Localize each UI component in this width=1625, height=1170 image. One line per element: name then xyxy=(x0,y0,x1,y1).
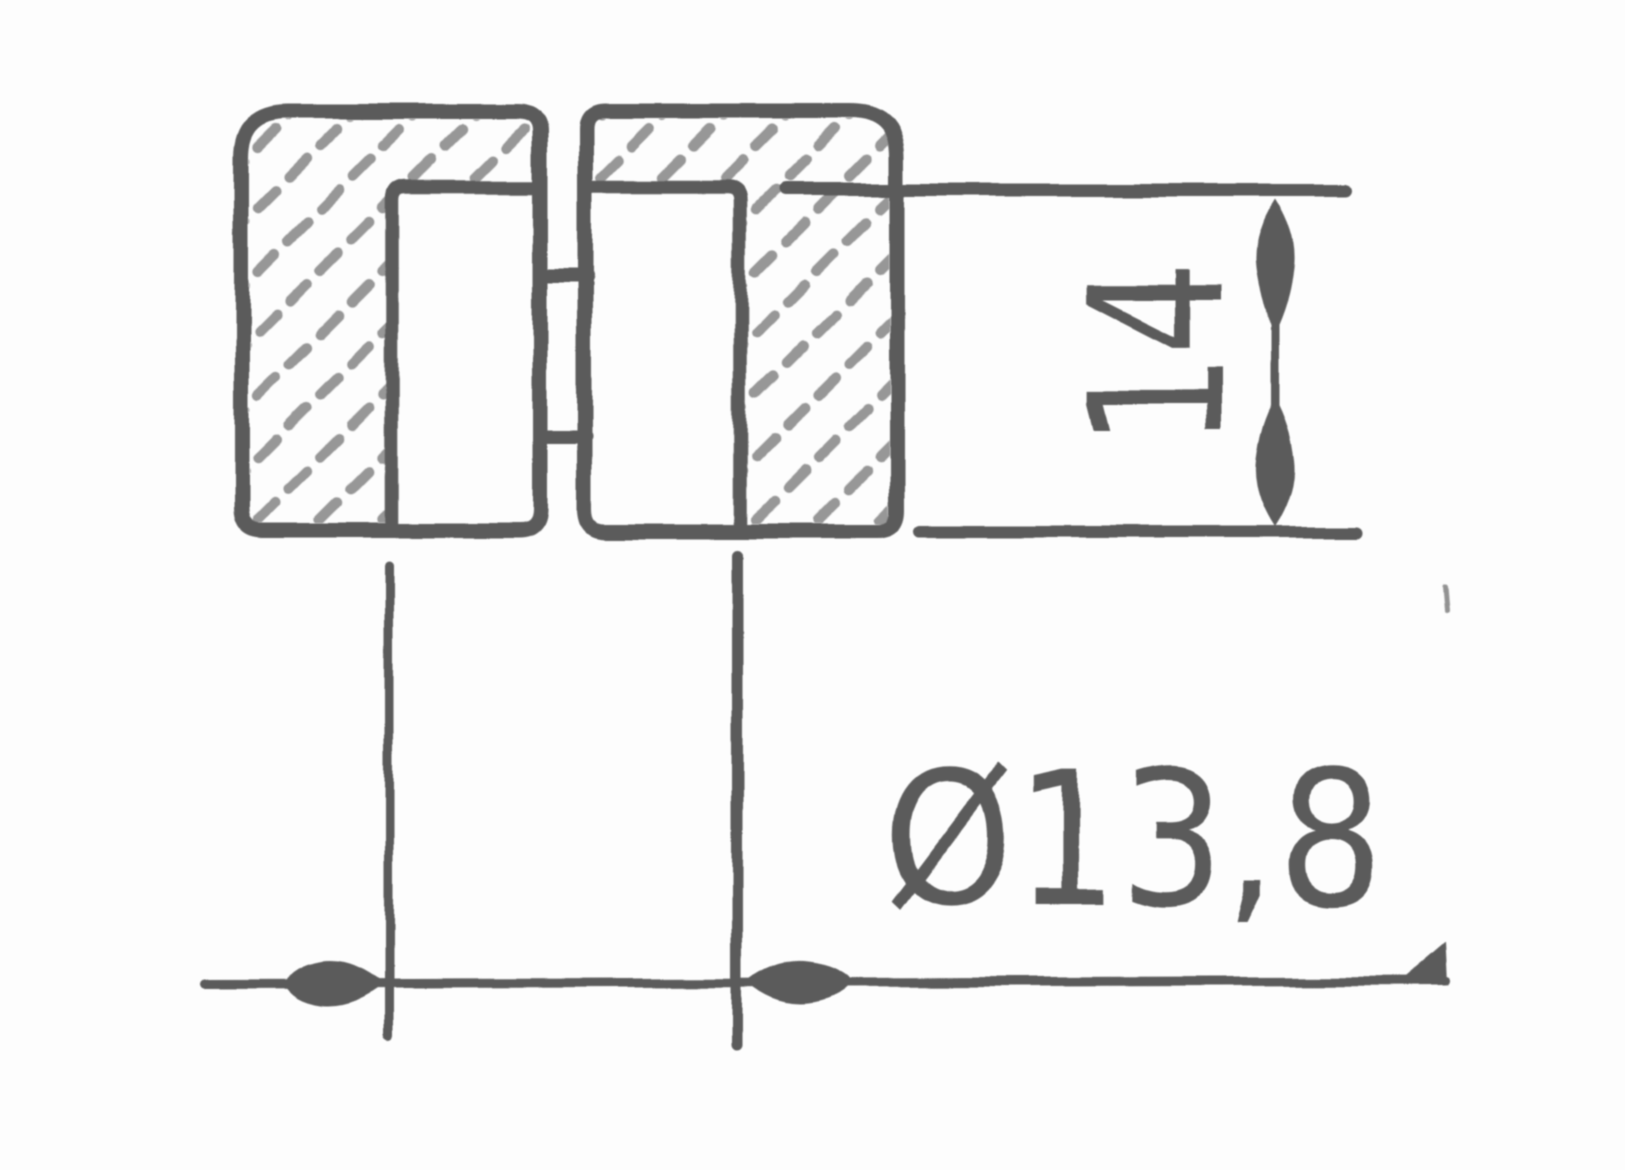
diameter-arrow-left xyxy=(285,960,384,1005)
right-half-section xyxy=(585,111,897,531)
stray-pencil-tick xyxy=(1444,588,1446,611)
diameter-arrow-right xyxy=(747,960,853,1003)
height-dim-label: 14 xyxy=(1050,262,1266,447)
diameter-dim-label: Ø13,8 xyxy=(884,731,1384,947)
drawing-canvas: 14 Ø13,8 xyxy=(0,0,1625,1170)
right-bore-outline xyxy=(588,187,740,524)
diameter-dimension: Ø13,8 xyxy=(203,556,1447,1046)
dim-line-end-flick xyxy=(1398,942,1447,983)
section-sketch: 14 Ø13,8 xyxy=(0,0,1625,1170)
left-bore-outline xyxy=(392,187,538,524)
left-half-section xyxy=(241,111,540,531)
